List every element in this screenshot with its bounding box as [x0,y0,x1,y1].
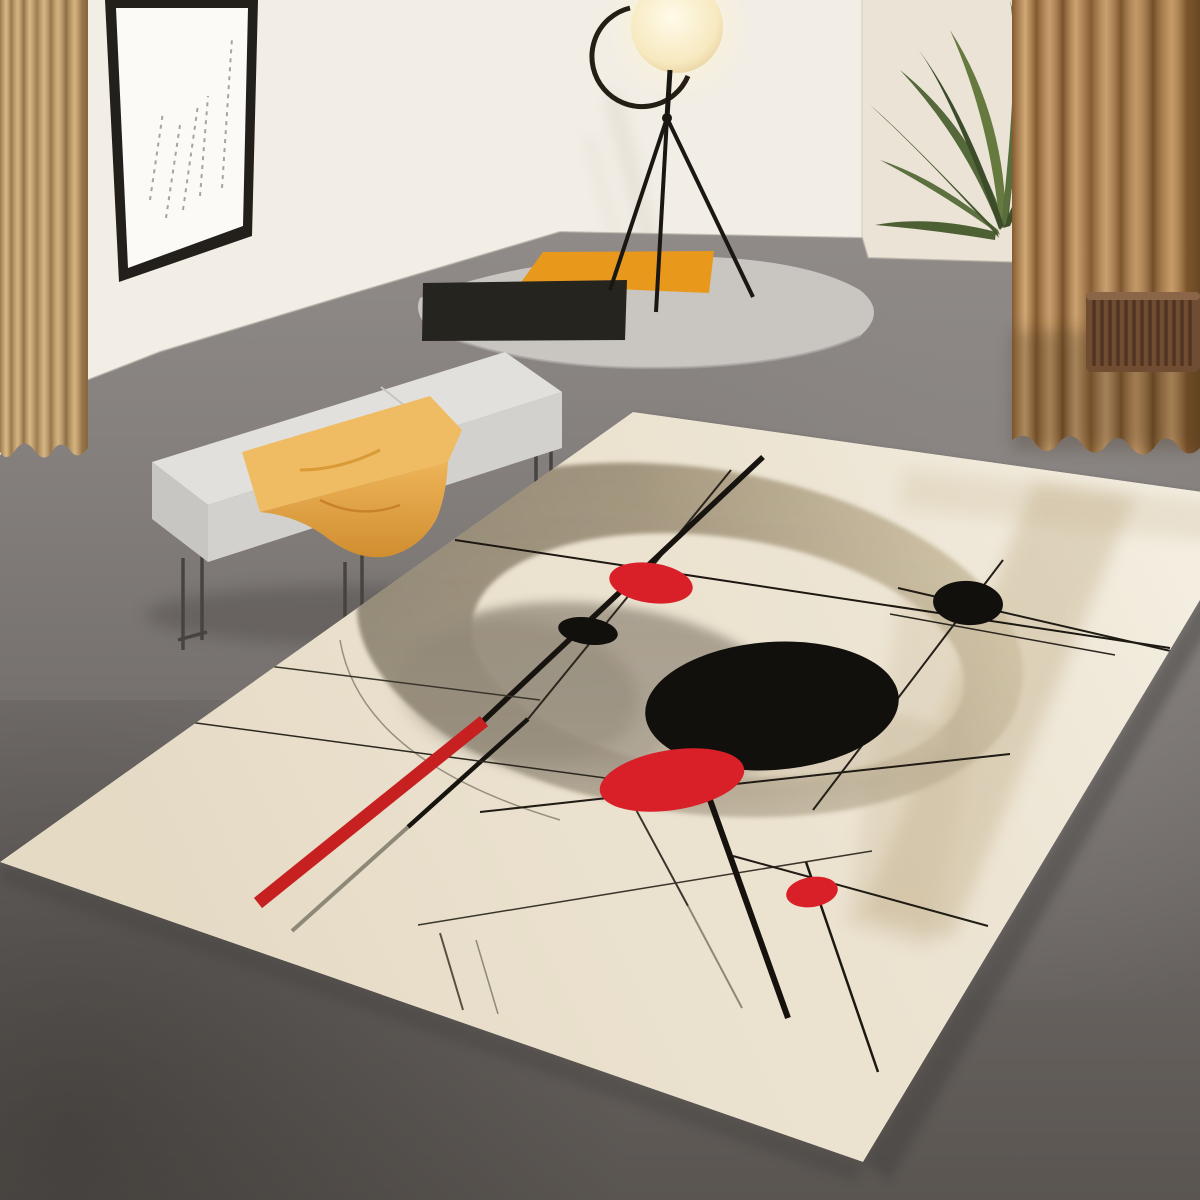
left-curtain [0,0,88,458]
art-mat [116,8,248,268]
radiator-top-cap [1086,292,1200,300]
right-curtain [1012,0,1200,455]
radiator-ribs [1094,300,1190,366]
lamp-stem [667,70,670,118]
radiator [1086,292,1200,372]
oval-mat-black-band [422,280,627,341]
room-photo [0,0,1200,1200]
left-curtain-folds [0,0,88,458]
framed-artwork [105,0,258,282]
room-scene [0,0,1200,1200]
